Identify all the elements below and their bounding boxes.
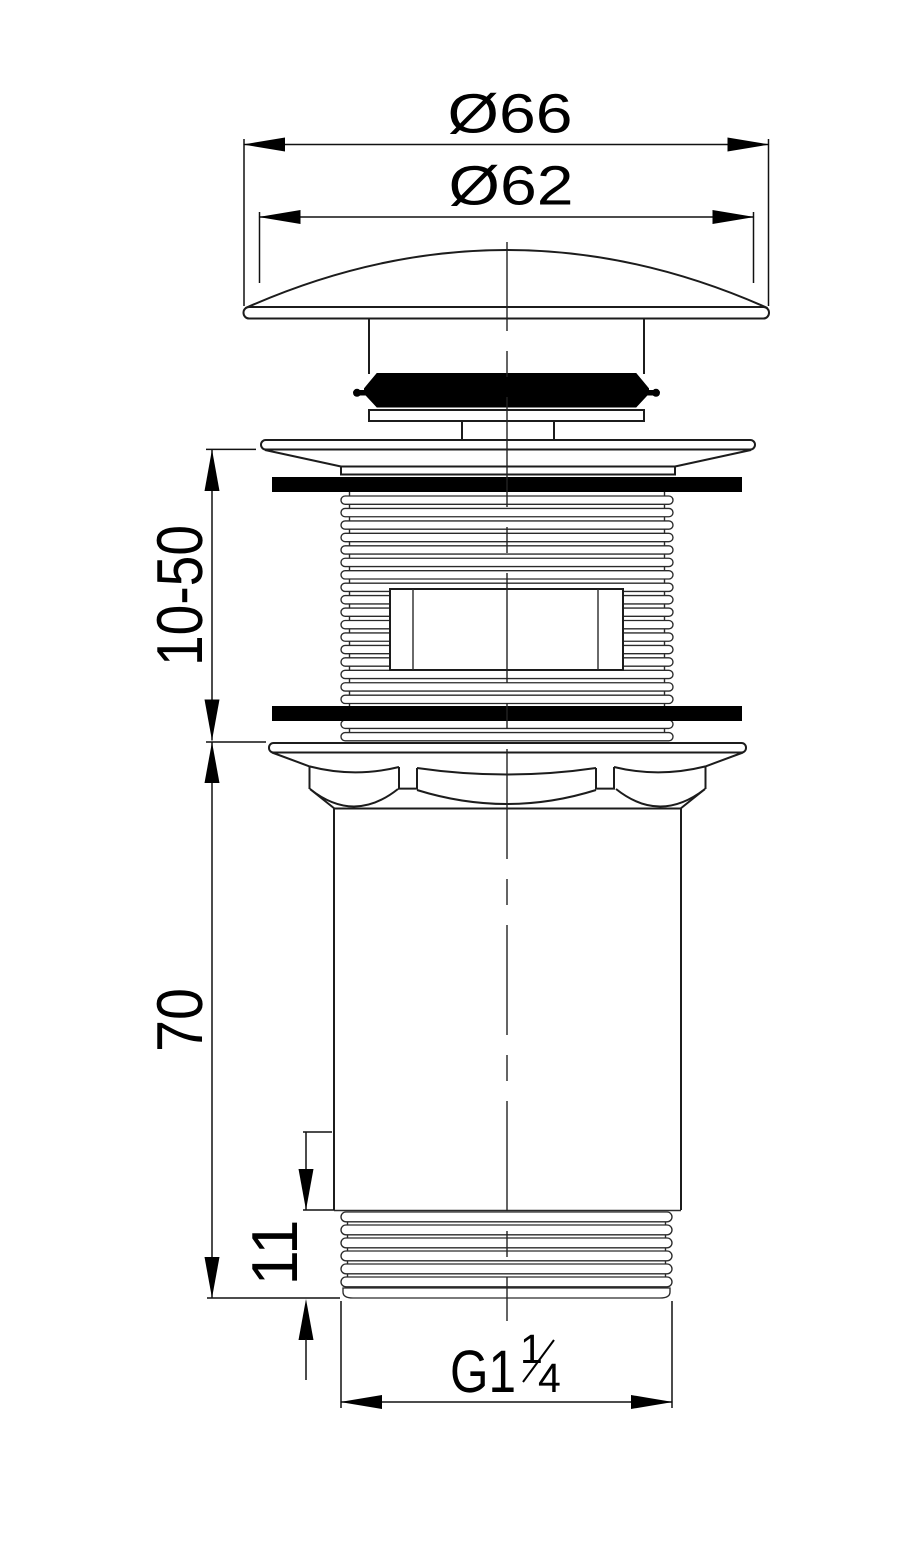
svg-text:Ø66: Ø66	[448, 83, 573, 145]
svg-text:70: 70	[143, 988, 216, 1052]
svg-text:11: 11	[238, 1220, 311, 1286]
svg-text:4: 4	[538, 1355, 561, 1401]
svg-text:Ø62: Ø62	[449, 155, 574, 217]
svg-text:G1: G1	[450, 1338, 516, 1405]
svg-text:10-50: 10-50	[143, 525, 216, 666]
